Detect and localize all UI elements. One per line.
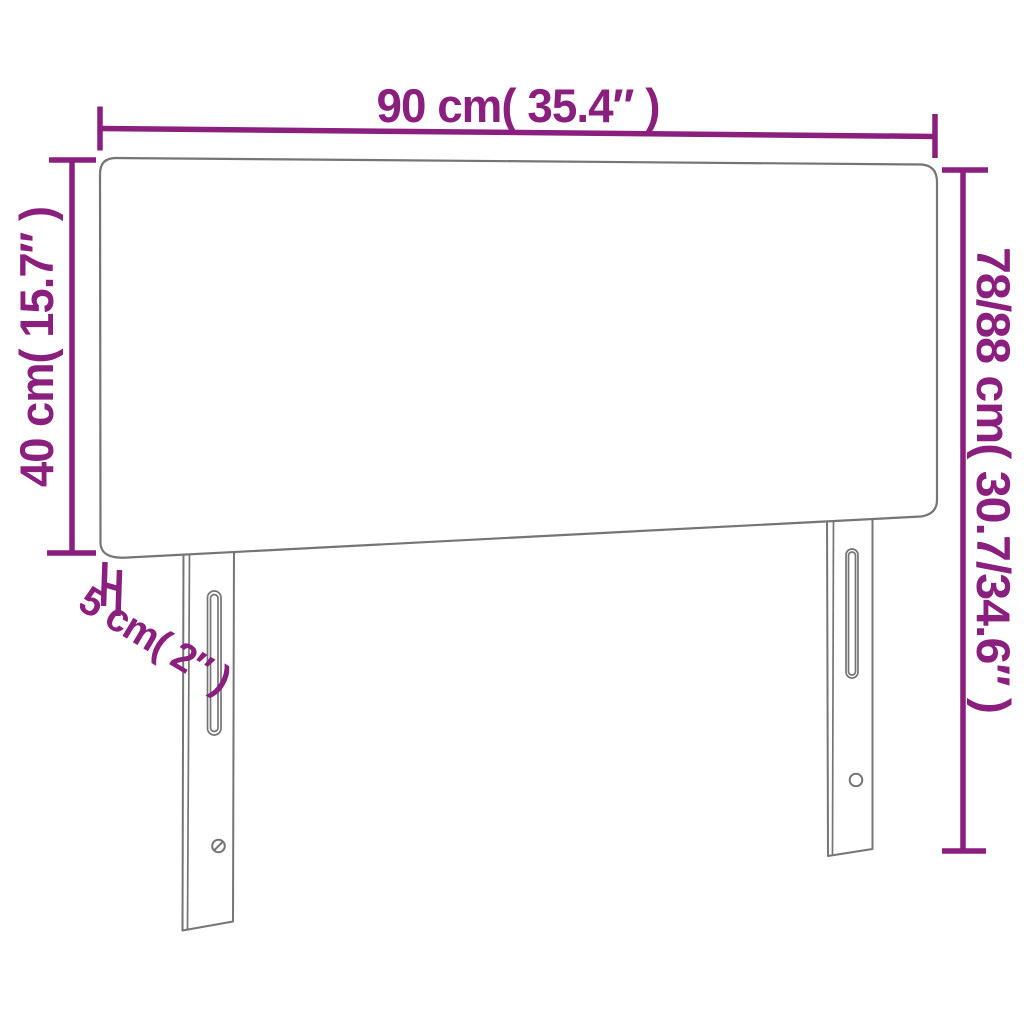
right-height-dimension: 78/88 cm( 30.7/34.6″ ) (942, 170, 1020, 851)
width-dimension: 90 cm( 35.4″ ) (100, 79, 935, 158)
right-leg-edge-line (833, 514, 834, 855)
headboard-dimension-diagram: 90 cm( 35.4″ ) 40 cm( 15.7″ ) 78/88 cm( … (0, 0, 1024, 1024)
headboard-panel (100, 158, 937, 558)
right-height-dimension-label: 78/88 cm( 30.7/34.6″ ) (967, 247, 1020, 713)
right-leg (827, 509, 873, 856)
left-height-dimension: 40 cm( 15.7″ ) (10, 160, 96, 553)
width-dimension-label: 90 cm( 35.4″ ) (377, 79, 660, 132)
headboard-drawing (100, 158, 937, 931)
left-height-dimension-label: 40 cm( 15.7″ ) (10, 207, 63, 487)
